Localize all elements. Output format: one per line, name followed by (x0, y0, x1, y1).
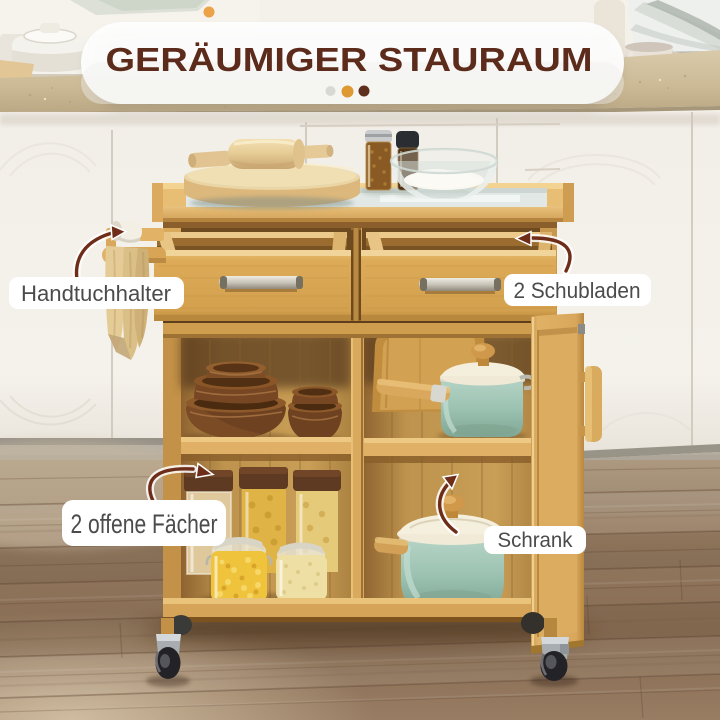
svg-text:2 offene Fächer: 2 offene Fächer (71, 509, 218, 539)
svg-text:2 Schubladen: 2 Schubladen (514, 278, 641, 303)
svg-text:Handtuchhalter: Handtuchhalter (21, 281, 171, 306)
svg-text:GERÄUMIGER STAURAUM: GERÄUMIGER STAURAUM (106, 41, 593, 78)
svg-text:Schrank: Schrank (498, 529, 573, 552)
